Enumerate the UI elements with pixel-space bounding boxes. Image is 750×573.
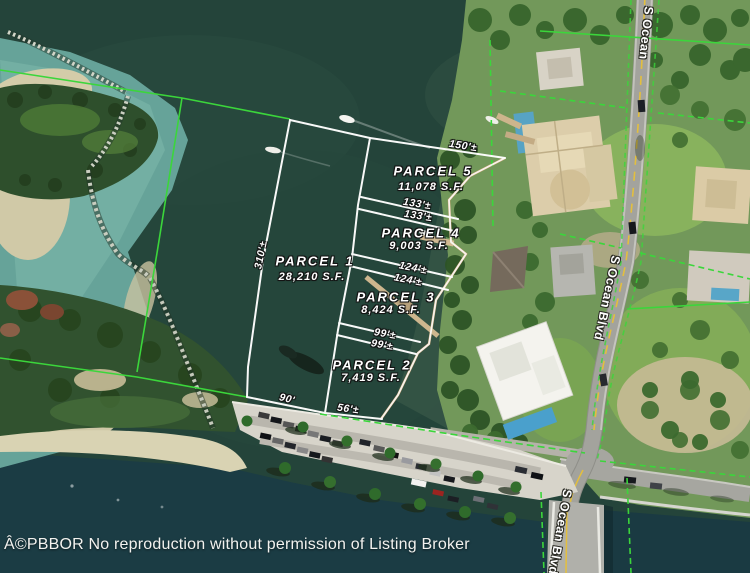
parcel-5-label: PARCEL 5 <box>393 164 472 179</box>
house-top-right <box>536 48 584 90</box>
east-mansion <box>692 166 750 224</box>
gray-house <box>550 245 595 298</box>
parcel-4-area: 9,003 S.F. <box>389 240 449 252</box>
parcel-1-area: 28,210 S.F. <box>279 271 346 283</box>
aerial-listing-photo: PARCEL 1 28,210 S.F. PARCEL 2 7,419 S.F.… <box>0 0 750 573</box>
parcel-1-label: PARCEL 1 <box>275 254 354 269</box>
parcel-2-area: 7,419 S.F. <box>341 372 401 384</box>
parcel-3-label: PARCEL 3 <box>356 290 435 305</box>
parcel-3-area: 8,424 S.F. <box>361 304 421 316</box>
copyright-text: Â©PBBOR No reproduction without permissi… <box>4 536 470 554</box>
aerial-photo-canvas <box>0 0 750 573</box>
parcel-4-label: PARCEL 4 <box>381 226 460 241</box>
parcel-2-label: PARCEL 2 <box>332 358 411 373</box>
parcel-5-area: 11,078 S.F. <box>398 181 464 193</box>
